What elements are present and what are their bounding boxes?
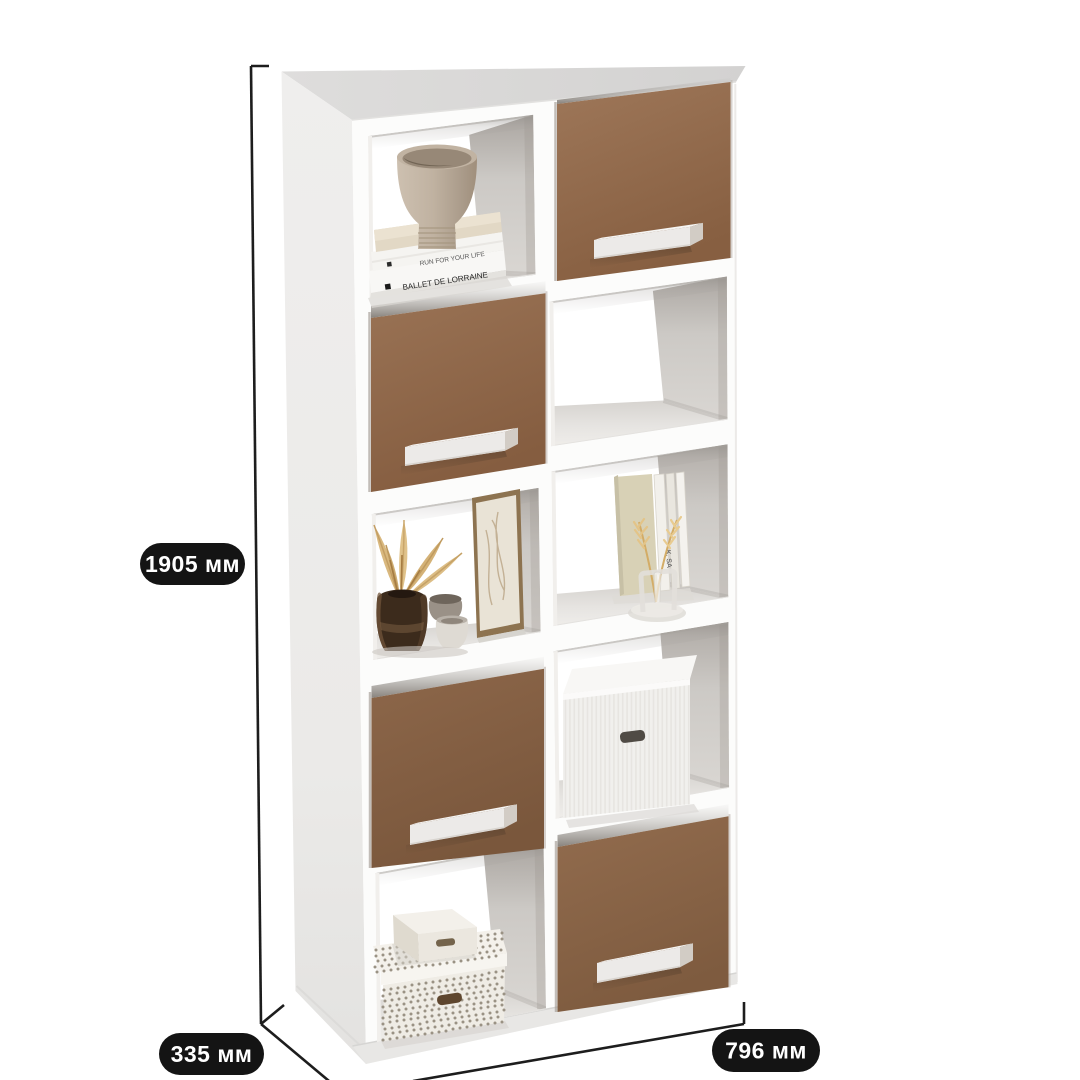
svg-text:1905 мм: 1905 мм (145, 551, 240, 577)
svg-text:335 мм: 335 мм (171, 1041, 253, 1067)
svg-text:796 мм: 796 мм (725, 1038, 807, 1064)
